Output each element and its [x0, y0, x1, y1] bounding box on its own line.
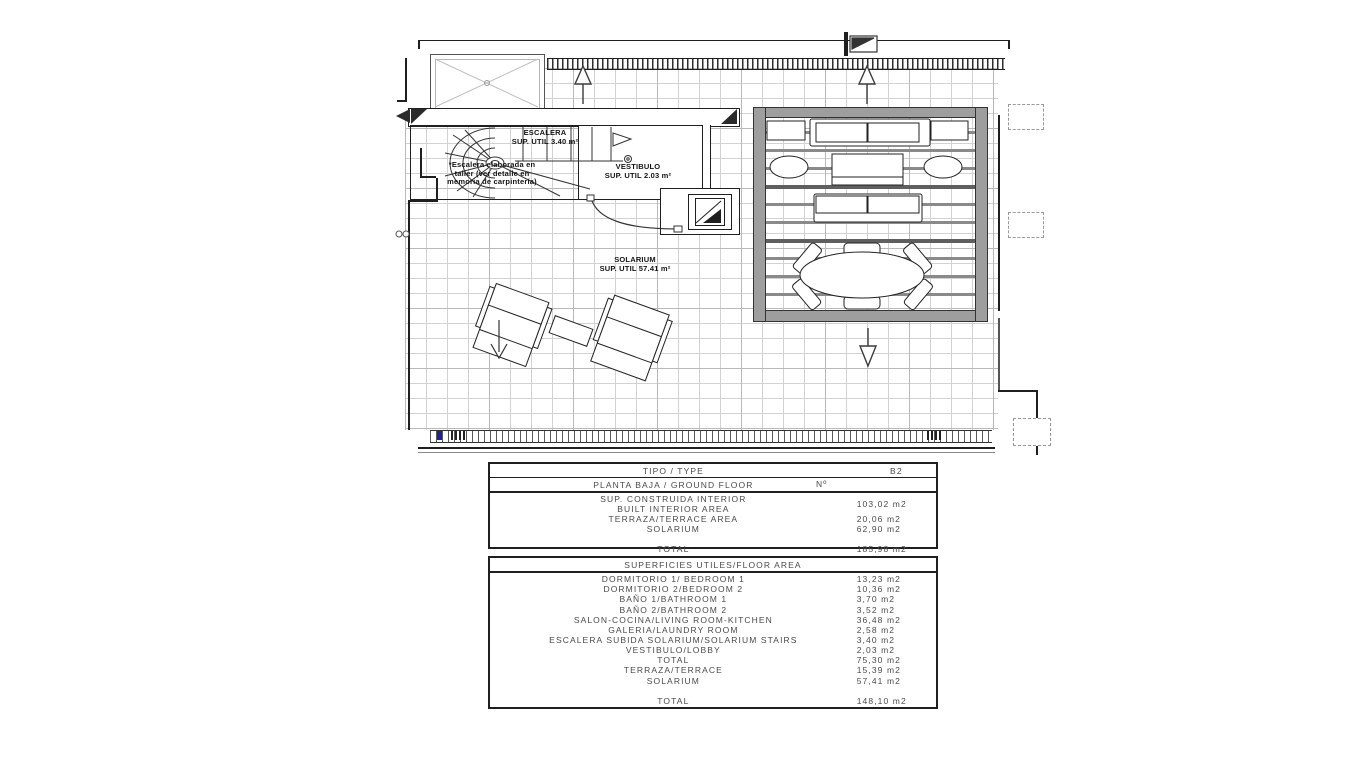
- row-value: 20,06 m2: [857, 514, 936, 524]
- down-arrow-icon: [860, 328, 876, 366]
- table-row: GALERIA/LAUNDRY ROOM 2,58 m2: [490, 625, 936, 635]
- row-label: VESTIBULO/LOBBY: [490, 645, 857, 655]
- row-label: TERRAZA/TERRACE: [490, 665, 857, 675]
- number-label: Nº: [816, 479, 827, 489]
- row-label: TERRAZA/TERRACE AREA: [490, 514, 857, 524]
- drain-symbol: [396, 231, 409, 237]
- row-label: SOLARIUM: [490, 524, 857, 534]
- row-label: DORMITORIO 2/BEDROOM 2: [490, 584, 857, 594]
- row-value: 103,02 m2: [857, 499, 936, 509]
- row-value: 185,98 m2: [857, 544, 936, 554]
- floor-area-title: SUPERFICIES UTILES/FLOOR AREA: [490, 560, 936, 570]
- dining-set: [791, 242, 933, 311]
- side-table: [549, 316, 593, 347]
- table-row: SOLARIUM 62,90 m2: [490, 524, 936, 534]
- table-row: DORMITORIO 1/ BEDROOM 1 13,23 m2: [490, 574, 936, 584]
- table-row: BAÑO 2/BATHROOM 2 3,52 m2: [490, 605, 936, 615]
- table-row: ESCALERA SUBIDA SOLARIUM/SOLARIUM STAIRS…: [490, 635, 936, 645]
- row-value: 13,23 m2: [857, 574, 936, 584]
- row-value: 62,90 m2: [857, 524, 936, 534]
- table-row: [490, 534, 936, 544]
- row-value: 3,52 m2: [857, 605, 936, 615]
- row-value: 2,58 m2: [857, 625, 936, 635]
- row-label: TOTAL: [490, 544, 857, 554]
- type-table-body: SUP. CONSTRUIDA INTERIOR BUILT INTERIOR …: [490, 493, 936, 555]
- floor-area-body: DORMITORIO 1/ BEDROOM 1 13,23 m2 DORMITO…: [490, 573, 936, 707]
- vestibulo-label: VESTIBULOSUP. UTIL 2.03 m²: [582, 163, 694, 180]
- escalera-note: *Escalera elaborada en taller (ver detal…: [407, 161, 577, 187]
- outdoor-sofa-bottom: [814, 194, 922, 222]
- table-row: TOTAL 185,98 m2: [490, 544, 936, 554]
- table-row: [490, 686, 936, 696]
- plan-vector-layer: [395, 28, 1065, 470]
- sun-lounger: [468, 282, 553, 368]
- table-row: SOLARIUM 57,41 m2: [490, 676, 936, 686]
- row-label: TOTAL: [490, 655, 857, 665]
- row-label: SALON-COCINA/LIVING ROOM-KITCHEN: [490, 615, 857, 625]
- floor-plan-sheet: ESCALERASUP. UTIL 3.40 m² *Escalera elab…: [0, 0, 1366, 768]
- table-row: TERRAZA/TERRACE 15,39 m2: [490, 665, 936, 675]
- solarium-label: SOLARIUMSUP. UTIL 57.41 m²: [570, 256, 700, 273]
- row-value: 36,48 m2: [857, 615, 936, 625]
- outdoor-sofa-top: [767, 119, 968, 146]
- solarium-floor-plan: ESCALERASUP. UTIL 3.40 m² *Escalera elab…: [395, 28, 1065, 470]
- row-label: DORMITORIO 1/ BEDROOM 1: [490, 574, 857, 584]
- row-value: 148,10 m2: [857, 696, 936, 706]
- table-row: SALON-COCINA/LIVING ROOM-KITCHEN 36,48 m…: [490, 615, 936, 625]
- skylight-cross: [435, 59, 538, 107]
- floor-header: PLANTA BAJA / GROUND FLOOR Nº: [490, 478, 936, 493]
- table-row: BAÑO 1/BATHROOM 1 3,70 m2: [490, 594, 936, 604]
- row-label: SUP. CONSTRUIDA INTERIOR BUILT INTERIOR …: [490, 494, 857, 514]
- floor-area-table: SUPERFICIES UTILES/FLOOR AREA DORMITORIO…: [488, 556, 938, 709]
- table-row: DORMITORIO 2/BEDROOM 2 10,36 m2: [490, 584, 936, 594]
- up-arrow-icon: [575, 66, 875, 104]
- row-label: BAÑO 2/BATHROOM 2: [490, 605, 857, 615]
- landing-corner-marks: [396, 109, 737, 124]
- table-row: TOTAL 75,30 m2: [490, 655, 936, 665]
- table-row: TOTAL 148,10 m2: [490, 696, 936, 706]
- row-value: 10,36 m2: [857, 584, 936, 594]
- row-value: 3,70 m2: [857, 594, 936, 604]
- floor-area-header: SUPERFICIES UTILES/FLOOR AREA: [490, 558, 936, 573]
- table-row: TERRAZA/TERRACE AREA 20,06 m2: [490, 514, 936, 524]
- sun-lounger: [586, 293, 674, 382]
- row-value: 3,40 m2: [857, 635, 936, 645]
- type-area-table: TIPO / TYPE B2 PLANTA BAJA / GROUND FLOO…: [488, 462, 938, 549]
- row-value: 75,30 m2: [857, 655, 936, 665]
- coffee-table-set: [770, 154, 962, 185]
- row-label: BAÑO 1/BATHROOM 1: [490, 594, 857, 604]
- duct-hatch: [696, 201, 721, 223]
- row-label: GALERIA/LAUNDRY ROOM: [490, 625, 857, 635]
- table-row: SUP. CONSTRUIDA INTERIOR BUILT INTERIOR …: [490, 494, 936, 514]
- door-swing: [587, 195, 682, 232]
- escalera-label: ESCALERASUP. UTIL 3.40 m²: [490, 129, 600, 146]
- row-label: SOLARIUM: [490, 676, 857, 686]
- row-value: 57,41 m2: [857, 676, 936, 686]
- table-row: VESTIBULO/LOBBY 2,03 m2: [490, 645, 936, 655]
- scupper-icon: [850, 36, 877, 52]
- floor-label: PLANTA BAJA / GROUND FLOOR: [490, 480, 857, 490]
- row-value: 2,03 m2: [857, 645, 936, 655]
- row-label: ESCALERA SUBIDA SOLARIUM/SOLARIUM STAIRS: [490, 635, 857, 645]
- row-label: TOTAL: [490, 696, 857, 706]
- row-value: 15,39 m2: [857, 665, 936, 675]
